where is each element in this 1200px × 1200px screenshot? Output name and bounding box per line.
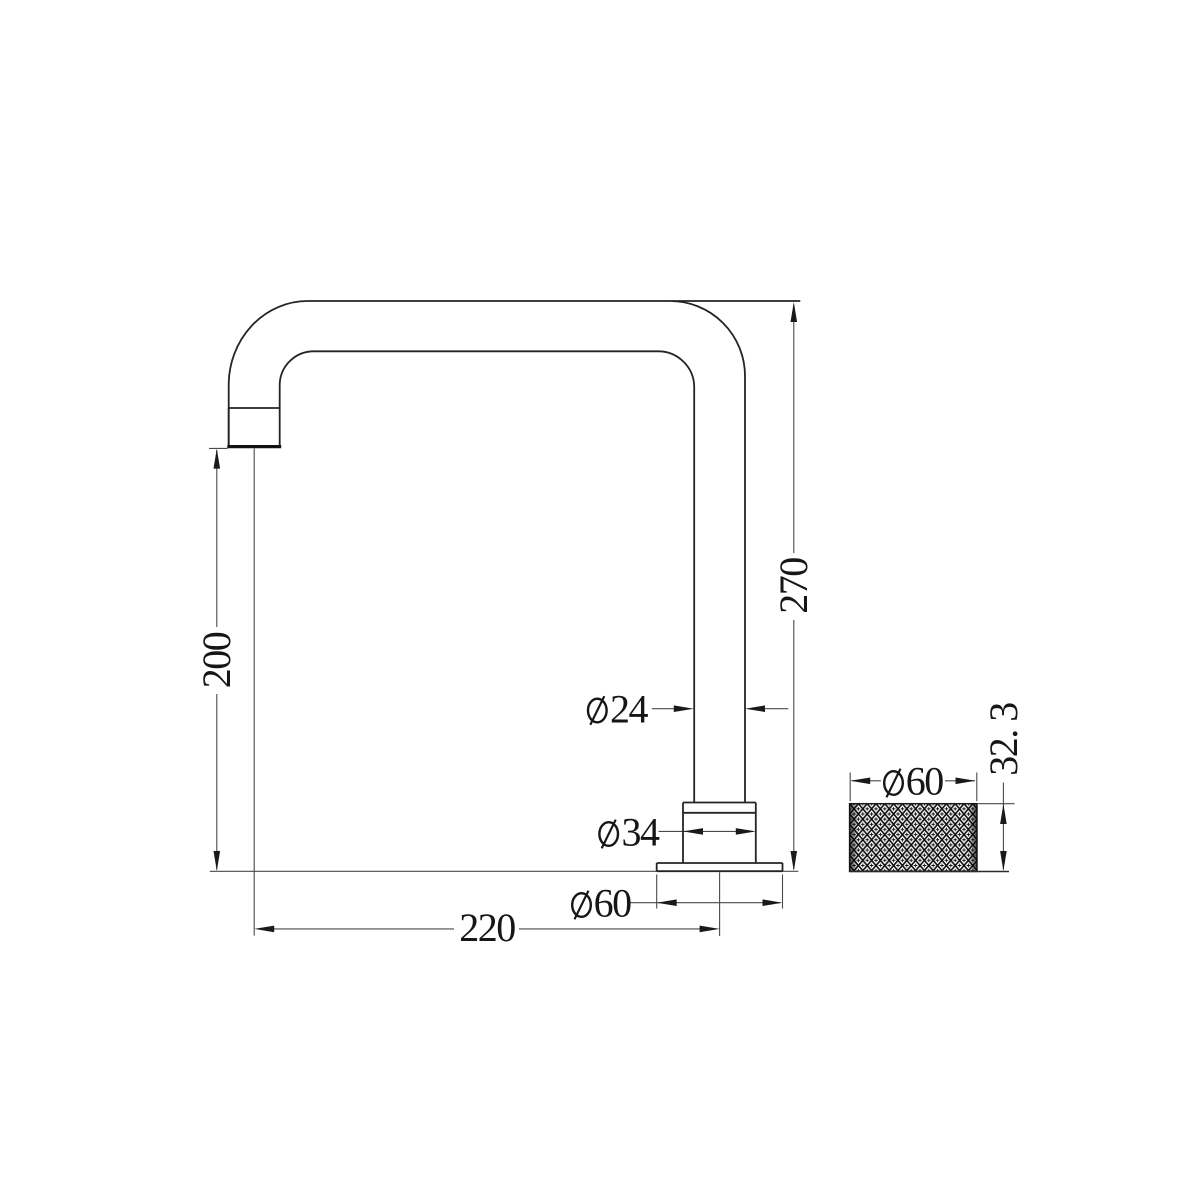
svg-text:200: 200 (194, 632, 239, 688)
svg-text:24: 24 (610, 686, 649, 731)
svg-text:32. 3: 32. 3 (981, 703, 1026, 776)
svg-text:60: 60 (906, 759, 944, 804)
svg-text:34: 34 (622, 810, 661, 855)
svg-text:60: 60 (594, 881, 632, 926)
svg-text:270: 270 (771, 558, 816, 614)
svg-text:220: 220 (459, 905, 515, 950)
